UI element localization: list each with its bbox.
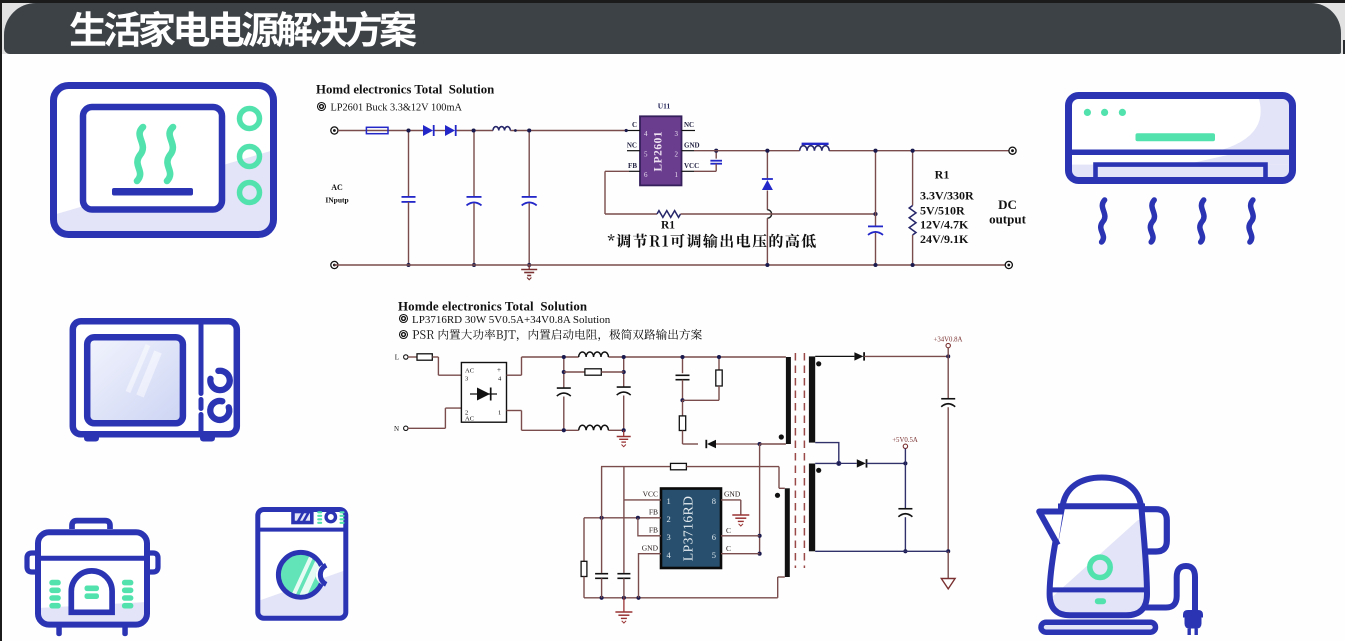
svg-text:R1: R1 [935, 168, 950, 182]
svg-text:C: C [726, 526, 731, 535]
svg-text:12V/4.7K: 12V/4.7K [920, 218, 969, 232]
svg-text:LP2601: LP2601 [653, 131, 665, 172]
svg-text:FB: FB [628, 162, 637, 170]
svg-text:GND: GND [724, 490, 741, 499]
svg-text:FB: FB [649, 508, 658, 517]
svg-text:3.3V/330R: 3.3V/330R [920, 189, 974, 203]
svg-text:VCC: VCC [684, 162, 699, 170]
svg-text:LP3716RD: LP3716RD [681, 496, 696, 562]
svg-text:NC: NC [627, 141, 637, 149]
svg-text:C: C [632, 121, 637, 129]
svg-text:NC: NC [684, 121, 694, 129]
svg-text:1: 1 [667, 496, 671, 506]
svg-text:1: 1 [498, 410, 501, 417]
svg-text:GND: GND [642, 544, 659, 553]
svg-text:GND: GND [684, 141, 700, 149]
svg-text:VCC: VCC [643, 490, 658, 499]
svg-text:3: 3 [675, 130, 679, 138]
svg-text:AC: AC [465, 416, 474, 423]
svg-text:C: C [726, 544, 731, 553]
svg-text:+: + [497, 366, 501, 374]
svg-text:AC: AC [331, 183, 343, 192]
svg-text:24V/9.1K: 24V/9.1K [920, 232, 969, 246]
svg-text:5: 5 [712, 550, 716, 560]
svg-text:INputp: INputp [325, 196, 348, 205]
svg-text:N: N [394, 425, 399, 433]
svg-text:3: 3 [465, 376, 468, 383]
svg-text:5: 5 [644, 150, 648, 158]
svg-text:5V/510R: 5V/510R [920, 203, 965, 217]
svg-text:FB: FB [649, 526, 658, 535]
svg-text:Homde electronics Total Solut: Homde electronics Total Solution [398, 300, 587, 314]
svg-text:+34V0.8A: +34V0.8A [934, 336, 963, 343]
svg-text:LP3716RD 30W 5V0.5A+34V0.8A So: LP3716RD 30W 5V0.5A+34V0.8A Solution [412, 314, 611, 326]
svg-text:U11: U11 [658, 102, 671, 111]
svg-text:R1: R1 [661, 220, 675, 232]
svg-text:2: 2 [675, 150, 679, 158]
svg-text:+5V0.5A: +5V0.5A [892, 437, 918, 444]
svg-text:1: 1 [675, 171, 679, 179]
svg-text:AC: AC [465, 368, 474, 375]
svg-text:3: 3 [667, 532, 671, 542]
svg-text:output: output [989, 212, 1027, 227]
svg-text:6: 6 [712, 532, 716, 542]
svg-text:DC: DC [998, 197, 1017, 212]
svg-text:Homd electronics Total Soluti: Homd electronics Total Solution [316, 83, 494, 97]
svg-text:8: 8 [712, 496, 716, 506]
svg-text:L: L [395, 354, 399, 362]
svg-text:4: 4 [644, 130, 648, 138]
svg-text:6: 6 [644, 171, 648, 179]
svg-text:LP2601 Buck 3.3&12V 100mA: LP2601 Buck 3.3&12V 100mA [331, 103, 463, 114]
svg-text:2: 2 [667, 514, 671, 524]
